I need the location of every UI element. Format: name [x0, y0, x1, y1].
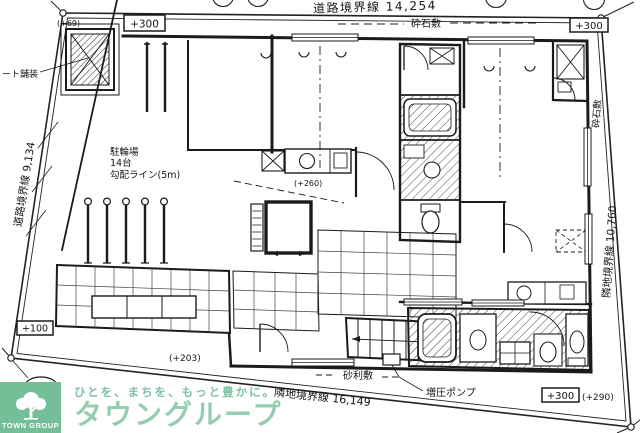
sleeve-symbols [261, 52, 535, 71]
dim-bottom: 隣地境界線 16,149 [273, 385, 371, 409]
mailboxes [92, 296, 196, 318]
toilet [540, 342, 556, 362]
bike-area-slope: 勾配ライン(5m) [110, 169, 180, 181]
logo-mark-text: TOWN GROUP [2, 421, 59, 430]
town-group-logo-mark: TOWN GROUP [0, 382, 61, 433]
dim-top: 道路境界線 14,254 [313, 0, 437, 16]
logo-brand: タウングループ [74, 400, 282, 429]
surface-gravel-top: 砕石敷 [411, 17, 441, 30]
logo-text-block: ひとを、まちを、もっと豊かに。 タウングループ [74, 382, 282, 429]
bottom-right-room [383, 308, 590, 370]
unit-bath-column [400, 44, 532, 252]
dim-left: 道路境界線 9,134 [11, 141, 37, 228]
hall-door-arc [356, 152, 394, 190]
town-group-logo: TOWN GROUP ひとを、まちを、もっと豊かに。 タウングループ [0, 382, 282, 433]
bike-area-title: 駐輪場 [110, 146, 139, 158]
surface-gravel-right: 砕石敷 [590, 99, 604, 129]
booster-pump-label: 増圧ポンプ [426, 386, 476, 399]
level-top-left: +300 [130, 19, 159, 31]
level-top-right: +300 [575, 21, 602, 32]
floor-plan-image: 道路境界線 14,254 道路境界線 9,134 隣地境界線 10,760 隣地… [0, 0, 640, 433]
washbasin [470, 330, 486, 350]
site-plan-drawing: 道路境界線 14,254 道路境界線 9,134 隣地境界線 10,760 隣地… [0, 0, 640, 433]
level-hall: (+260) [294, 179, 322, 188]
level-bottom-right: +300 [547, 391, 574, 402]
booster-pump-box [383, 354, 400, 365]
door-arc [553, 78, 575, 100]
top-right-room [553, 45, 586, 252]
surface-gravel-bottom: 砂利敷 [343, 369, 373, 382]
level-tl-paren: (+69) [57, 19, 80, 28]
elevator [251, 202, 311, 256]
entrance-door [260, 324, 288, 352]
bike-area-count: 14台 [110, 157, 132, 169]
unit-door-arc [404, 46, 428, 70]
level-approach: (+203) [169, 354, 201, 364]
kitchen-counter [234, 149, 394, 203]
surface-pavement-left: ート舗装 [2, 68, 38, 80]
toilet [422, 211, 439, 233]
tree-icon [13, 391, 49, 421]
approach-tiles [56, 265, 230, 333]
point-leader [13, 361, 28, 378]
room-door-arc [504, 224, 532, 252]
level-bottom-right-paren: (+290) [582, 393, 614, 403]
washbasin [424, 162, 440, 178]
level-entrance: +100 [22, 324, 48, 335]
electrical-box [61, 24, 119, 95]
